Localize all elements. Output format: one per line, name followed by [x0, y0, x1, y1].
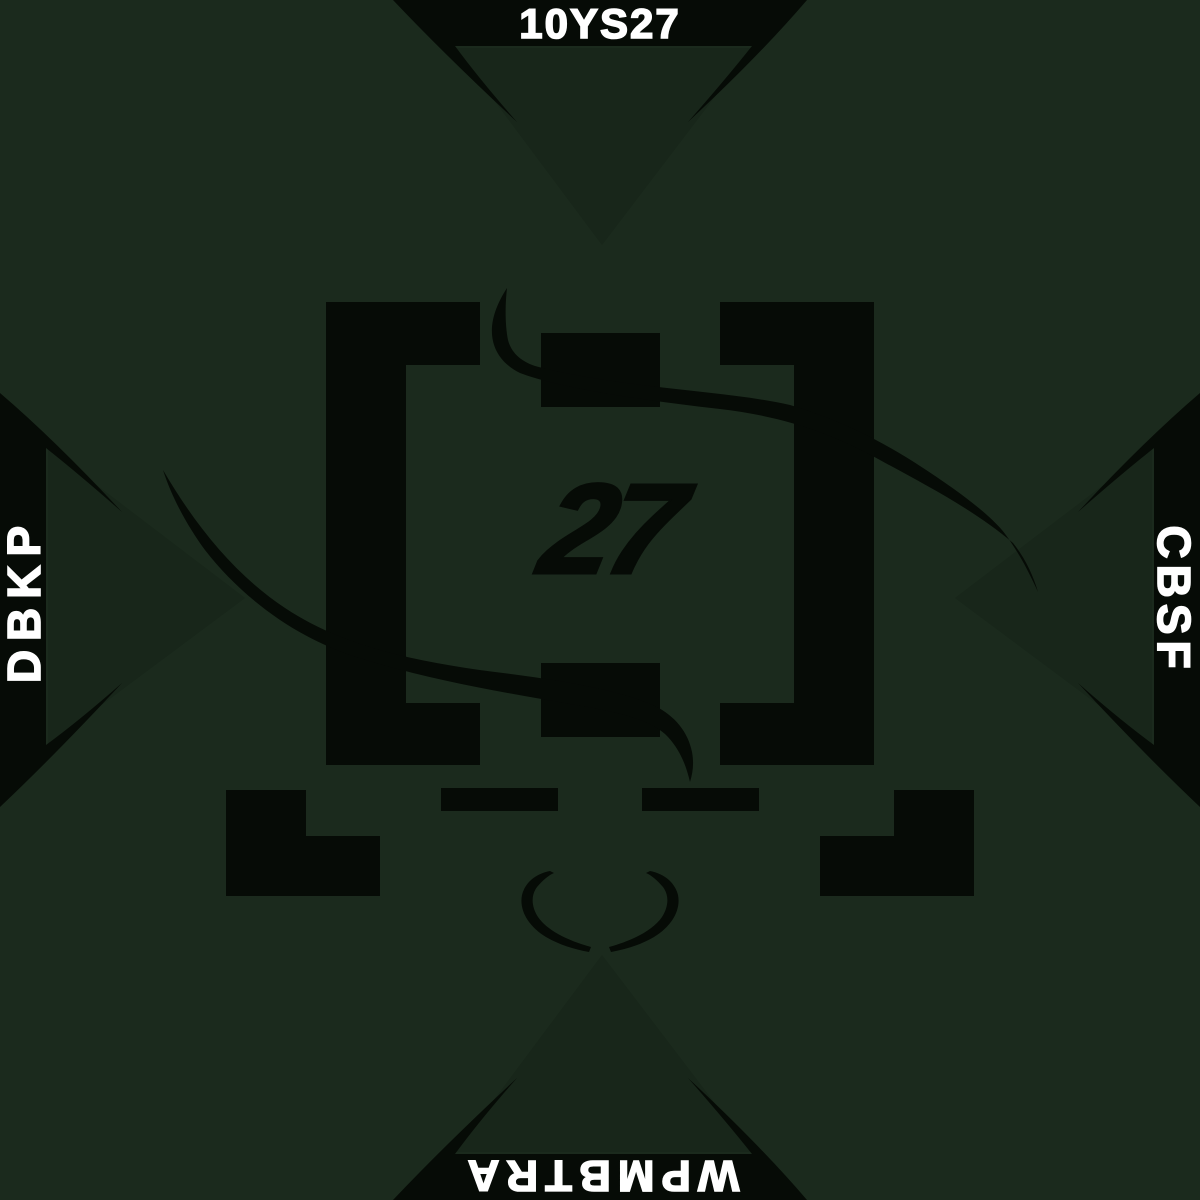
step-block-right-upper: [894, 790, 974, 836]
right-label-text: CBSF: [1148, 525, 1200, 674]
bottom-label-text: WPMBTRA: [461, 1151, 740, 1200]
step-block-left-upper: [226, 790, 306, 836]
album-cover-poster: 27 10YS27 DBKP CBSF WPMBTRA: [0, 0, 1200, 1200]
poster-canvas: 27 10YS27 DBKP CBSF WPMBTRA: [0, 0, 1200, 1200]
step-block-right-lower: [820, 836, 974, 896]
small-bar-left: [441, 788, 558, 811]
small-bar-right: [642, 788, 759, 811]
top-title-text: 10YS27: [519, 0, 680, 47]
step-block-left-lower: [226, 836, 380, 896]
left-label-text: DBKP: [0, 517, 50, 683]
